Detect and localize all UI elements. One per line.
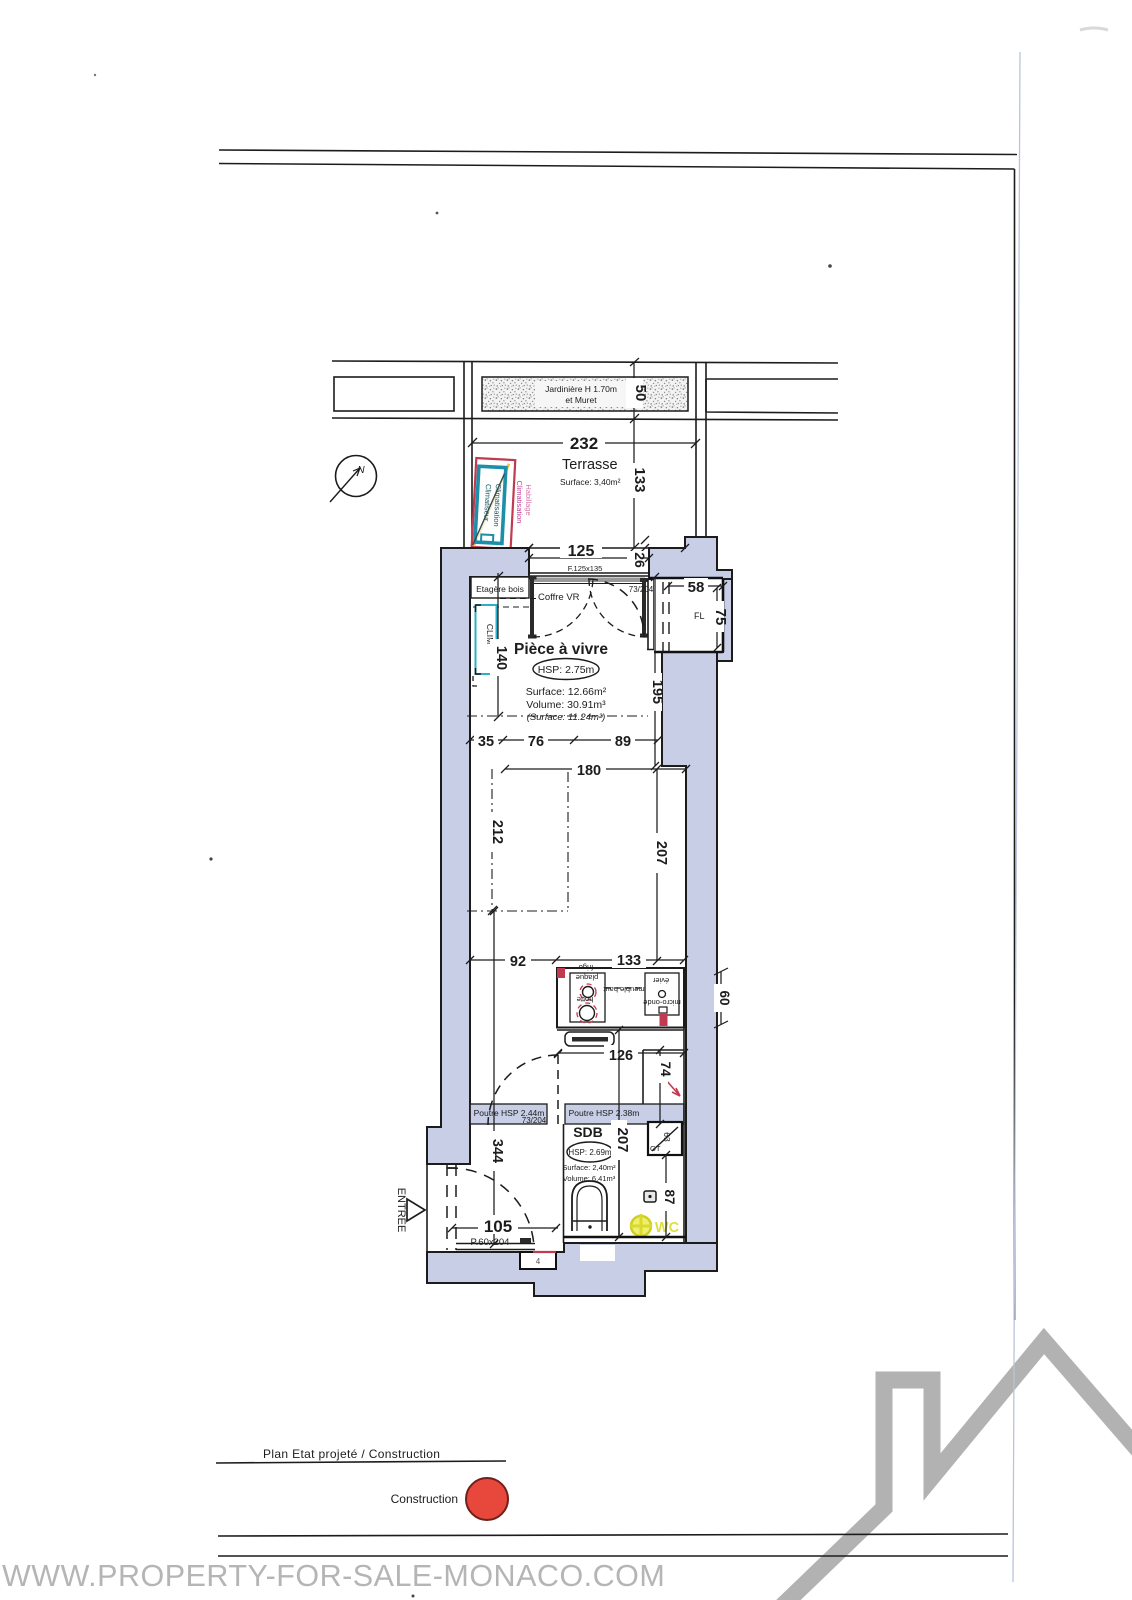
svg-text:126: 126 — [609, 1048, 633, 1064]
svg-text:Construction: Construction — [391, 1492, 458, 1506]
svg-text:212: 212 — [489, 820, 505, 844]
svg-text:92: 92 — [510, 954, 526, 970]
svg-text:195: 195 — [649, 680, 665, 704]
svg-text:35: 35 — [478, 734, 494, 750]
svg-text:WC: WC — [655, 1220, 680, 1236]
svg-text:Plan Etat projeté / Constructi: Plan Etat projeté / Construction — [263, 1447, 440, 1461]
svg-text:GT: GT — [650, 1144, 661, 1153]
svg-text:FL: FL — [694, 611, 705, 621]
svg-text:74: 74 — [658, 1061, 673, 1077]
svg-text:N: N — [357, 465, 365, 476]
svg-text:et Muret: et Muret — [565, 395, 597, 405]
svg-text:meuble haut: meuble haut — [602, 985, 644, 994]
svg-text:207: 207 — [653, 841, 669, 865]
svg-text:4: 4 — [536, 1257, 541, 1266]
svg-text:(Surface: 11.24m²): (Surface: 11.24m²) — [527, 712, 606, 723]
svg-text:évier: évier — [652, 976, 669, 985]
svg-text:75: 75 — [712, 609, 729, 626]
svg-text:ENTREE: ENTREE — [395, 1188, 407, 1233]
svg-text:Etagère bois: Etagère bois — [476, 584, 524, 594]
svg-text:344: 344 — [489, 1139, 505, 1163]
svg-text:micro-onde: micro-onde — [643, 998, 681, 1007]
svg-text:140: 140 — [493, 646, 509, 670]
svg-text:105: 105 — [484, 1217, 512, 1236]
svg-text:Volume: 30.91m³: Volume: 30.91m³ — [526, 699, 606, 711]
svg-text:26: 26 — [632, 552, 648, 568]
svg-text:Jardinière H 1.70m: Jardinière H 1.70m — [545, 384, 617, 394]
svg-text:133: 133 — [631, 467, 648, 492]
svg-text:73/204: 73/204 — [629, 585, 654, 594]
svg-text:Climatisation: Climatisation — [515, 481, 524, 524]
svg-text:60: 60 — [717, 990, 732, 1005]
svg-text:89: 89 — [615, 734, 631, 750]
svg-text:Poutre HSP 2.38m: Poutre HSP 2.38m — [569, 1108, 640, 1118]
svg-text:Coffre VR: Coffre VR — [538, 592, 580, 603]
svg-text:SDB: SDB — [573, 1124, 603, 1140]
svg-text:Habillage: Habillage — [524, 484, 533, 515]
svg-text:Terrasse: Terrasse — [562, 457, 618, 473]
svg-text:180: 180 — [577, 763, 601, 779]
svg-text:P.60x204: P.60x204 — [471, 1237, 510, 1248]
svg-text:HSP: 2.75m: HSP: 2.75m — [538, 664, 595, 676]
svg-text:76: 76 — [528, 734, 544, 750]
svg-text:Surface: 12.66m²: Surface: 12.66m² — [526, 686, 607, 698]
svg-text:WWW.PROPERTY-FOR-SALE-MONACO.C: WWW.PROPERTY-FOR-SALE-MONACO.COM — [2, 1559, 665, 1593]
svg-text:133: 133 — [617, 953, 641, 969]
svg-text:hotte: hotte — [577, 995, 594, 1004]
svg-text:125: 125 — [568, 543, 595, 560]
svg-text:F.125x135: F.125x135 — [568, 564, 603, 573]
svg-text:50: 50 — [632, 385, 649, 402]
svg-text:58: 58 — [688, 579, 705, 596]
svg-text:73/204: 73/204 — [522, 1116, 547, 1125]
svg-text:plaque: plaque — [576, 973, 599, 982]
svg-text:Surface: 3,40m²: Surface: 3,40m² — [560, 477, 621, 487]
svg-text:frigo: frigo — [579, 963, 594, 972]
svg-text:87: 87 — [662, 1189, 677, 1204]
svg-text:232: 232 — [570, 434, 598, 453]
svg-text:Surface: 2,40m²: Surface: 2,40m² — [562, 1163, 616, 1172]
svg-text:63: 63 — [662, 1132, 672, 1142]
svg-text:HSP: 2.69m: HSP: 2.69m — [568, 1148, 611, 1157]
svg-text:207: 207 — [614, 1127, 631, 1152]
svg-text:Pièce à vivre: Pièce à vivre — [514, 641, 608, 658]
